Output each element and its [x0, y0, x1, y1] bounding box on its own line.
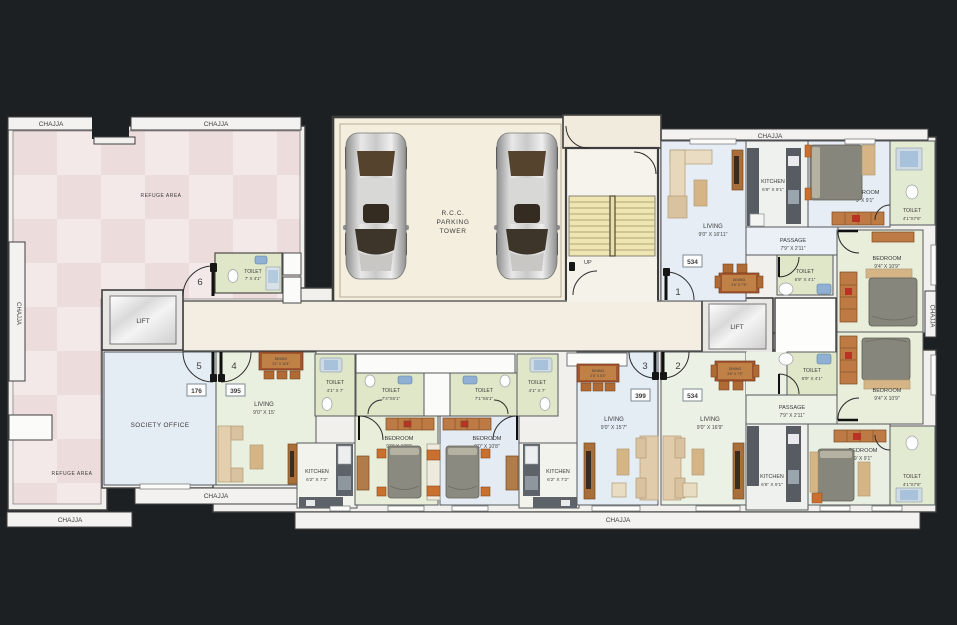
svg-text:LIFT: LIFT — [730, 324, 743, 331]
svg-text:TOILET: TOILET — [244, 269, 261, 275]
svg-text:6'6" X 9'1": 6'6" X 9'1" — [761, 482, 783, 488]
svg-text:TOILET: TOILET — [475, 388, 494, 394]
svg-text:CHAJJA: CHAJJA — [204, 121, 229, 128]
svg-text:3: 3 — [642, 361, 647, 372]
svg-text:LIVING: LIVING — [700, 417, 720, 423]
svg-text:TOILET: TOILET — [382, 388, 401, 394]
svg-text:BEDROOM: BEDROOM — [473, 436, 502, 442]
svg-text:CHAJJA: CHAJJA — [929, 305, 935, 328]
svg-text:6: 6 — [197, 277, 202, 288]
svg-text:CHAJJA: CHAJJA — [15, 302, 21, 325]
svg-text:PARKING: PARKING — [437, 219, 470, 226]
svg-text:6'9" X 4'1": 6'9" X 4'1" — [802, 376, 823, 381]
svg-text:1: 1 — [675, 287, 680, 298]
svg-text:KITCHEN: KITCHEN — [760, 474, 784, 480]
svg-text:TOWER: TOWER — [439, 228, 466, 235]
svg-text:534: 534 — [687, 259, 698, 266]
svg-text:7'4"X6'1": 7'4"X6'1" — [382, 396, 401, 401]
svg-text:TOILET: TOILET — [803, 368, 822, 374]
svg-text:2'1" X 12'4": 2'1" X 12'4" — [272, 362, 290, 366]
svg-text:BEDROOM: BEDROOM — [873, 256, 902, 262]
svg-text:4: 4 — [231, 361, 236, 372]
svg-text:TOILET: TOILET — [796, 269, 815, 275]
svg-text:CHAJJA: CHAJJA — [204, 493, 229, 500]
svg-text:4'1" X 7': 4'1" X 7' — [529, 388, 546, 393]
svg-text:PASSAGE: PASSAGE — [780, 238, 807, 244]
svg-text:7'9" X 2'11": 7'9" X 2'11" — [779, 413, 804, 419]
svg-text:CHAJJA: CHAJJA — [758, 133, 783, 140]
svg-text:LIVING: LIVING — [254, 402, 274, 408]
svg-text:KITCHEN: KITCHEN — [546, 469, 570, 475]
svg-text:6'6" X 9'1": 6'6" X 9'1" — [762, 187, 784, 193]
svg-text:9'4" X 10'9": 9'4" X 10'9" — [874, 264, 900, 270]
svg-text:TOILET: TOILET — [528, 380, 547, 386]
svg-text:534: 534 — [687, 393, 698, 400]
svg-text:BEDROOM: BEDROOM — [385, 436, 414, 442]
svg-text:7'1"X6'1": 7'1"X6'1" — [475, 396, 494, 401]
svg-text:CHAJJA: CHAJJA — [606, 517, 631, 524]
svg-text:R.C.C.: R.C.C. — [441, 210, 464, 217]
svg-text:UP: UP — [584, 260, 592, 266]
svg-text:SOCIETY OFFICE: SOCIETY OFFICE — [131, 422, 190, 429]
svg-text:6'9" X 4'1": 6'9" X 4'1" — [795, 277, 816, 282]
svg-text:6'2" X 7'2": 6'2" X 7'2" — [547, 477, 569, 483]
svg-text:9' X 9'1": 9' X 9'1" — [854, 456, 872, 462]
svg-text:LIFT: LIFT — [136, 318, 149, 325]
svg-text:DINING: DINING — [275, 357, 288, 361]
svg-text:CHAJJA: CHAJJA — [39, 121, 64, 128]
svg-text:PASSAGE: PASSAGE — [779, 405, 806, 411]
svg-text:KITCHEN: KITCHEN — [761, 179, 785, 185]
svg-text:176: 176 — [191, 388, 202, 395]
svg-text:DINING: DINING — [729, 367, 742, 371]
svg-text:DINING: DINING — [733, 278, 746, 282]
svg-text:BEDROOM: BEDROOM — [873, 388, 902, 394]
svg-text:LIVING: LIVING — [703, 224, 723, 230]
svg-text:9'4" X 10'9": 9'4" X 10'9" — [874, 396, 900, 402]
svg-text:6'2" X 7'2": 6'2" X 7'2" — [306, 477, 328, 483]
svg-text:4'1"X7'6": 4'1"X7'6" — [903, 216, 922, 221]
svg-text:7' X 4'1": 7' X 4'1" — [245, 276, 262, 281]
svg-text:5: 5 — [196, 361, 201, 372]
svg-text:9'0" X 16'9": 9'0" X 16'9" — [697, 425, 724, 431]
svg-text:3'6" X 7'9": 3'6" X 7'9" — [727, 372, 743, 376]
svg-text:TOILET: TOILET — [903, 208, 922, 214]
svg-text:4'1" X 7': 4'1" X 7' — [327, 388, 344, 393]
svg-text:CHAJJA: CHAJJA — [58, 517, 83, 524]
svg-text:DINING: DINING — [592, 369, 605, 373]
svg-text:395: 395 — [230, 388, 241, 395]
svg-text:7'9" X 2'11": 7'9" X 2'11" — [780, 246, 805, 252]
svg-text:2: 2 — [675, 361, 680, 372]
svg-text:2'6" X 6'3": 2'6" X 6'3" — [590, 374, 606, 378]
svg-text:TOILET: TOILET — [326, 380, 345, 386]
svg-text:KITCHEN: KITCHEN — [305, 469, 329, 475]
svg-text:9'0" X 15'7": 9'0" X 15'7" — [601, 425, 628, 431]
svg-text:9'0" X 16'11": 9'0" X 16'11" — [699, 232, 728, 238]
svg-text:REFUGE AREA: REFUGE AREA — [140, 193, 181, 199]
svg-text:REFUGE AREA: REFUGE AREA — [51, 471, 92, 477]
svg-text:4'1"X7'6": 4'1"X7'6" — [903, 482, 922, 487]
svg-text:399: 399 — [635, 393, 646, 400]
svg-text:9'0" X 15': 9'0" X 15' — [253, 410, 275, 416]
svg-text:LIVING: LIVING — [604, 417, 624, 423]
svg-text:TOILET: TOILET — [903, 474, 922, 480]
svg-text:3'6" X 7'9": 3'6" X 7'9" — [731, 283, 747, 287]
